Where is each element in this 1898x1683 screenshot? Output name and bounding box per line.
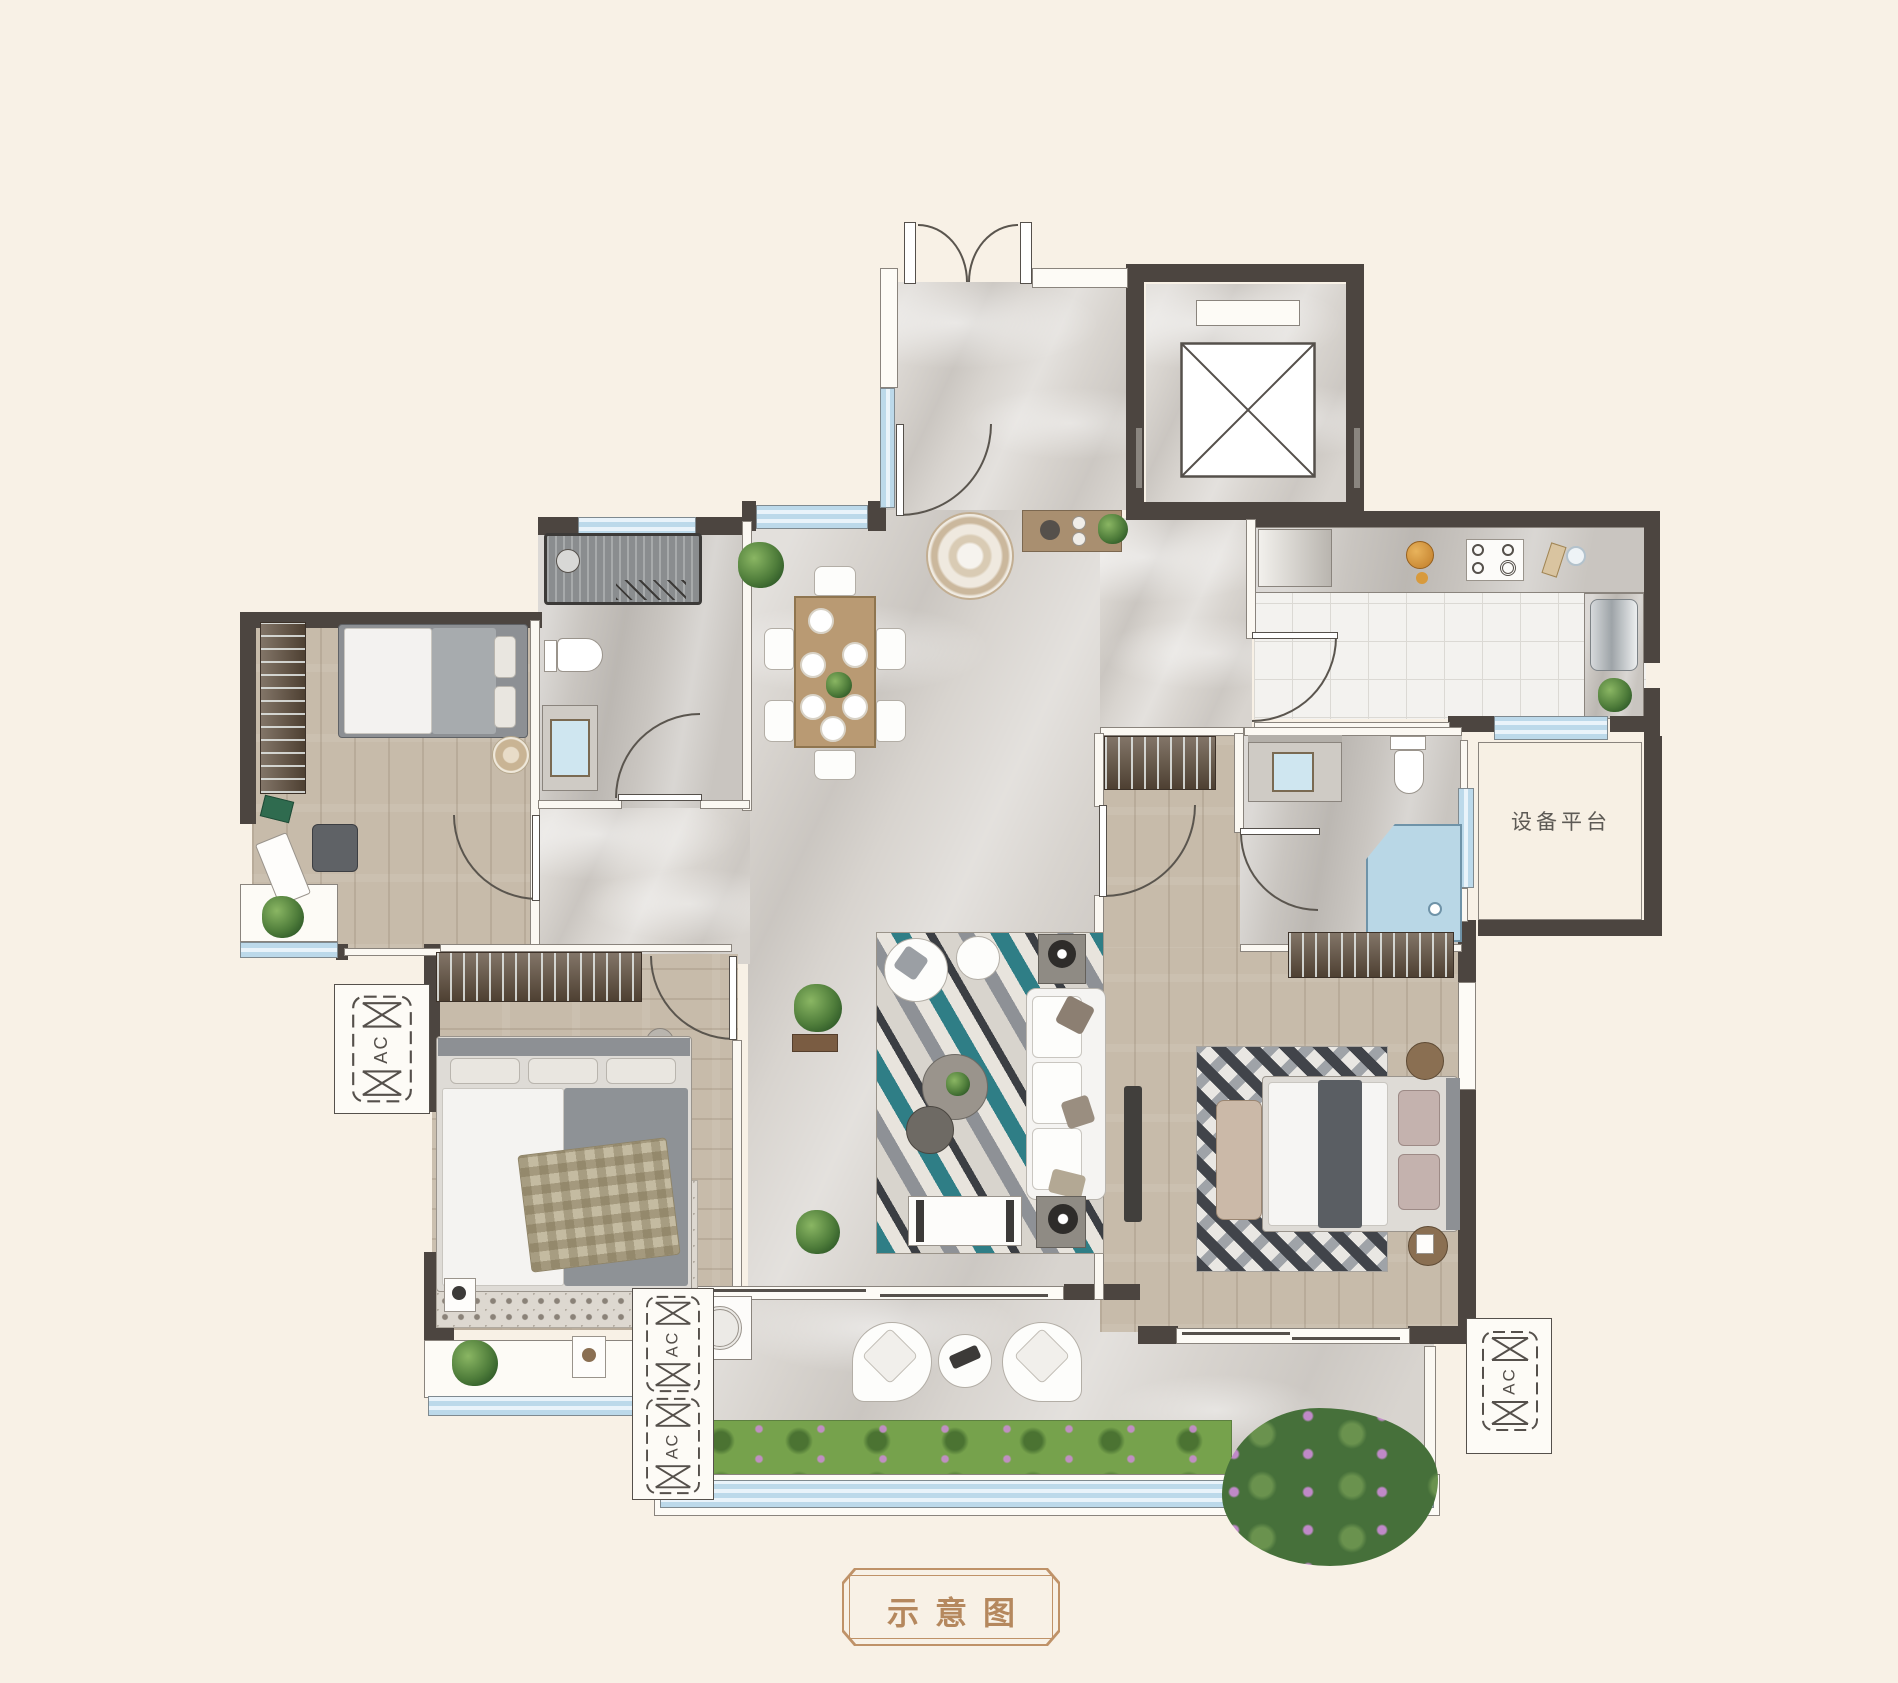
foyer-door-leaf	[896, 424, 904, 516]
round-rug	[926, 512, 1014, 600]
entry-door-leaf	[904, 222, 916, 284]
planter-box	[792, 1034, 838, 1052]
fruit-bowl	[1406, 541, 1434, 569]
plate	[842, 642, 868, 668]
partition	[700, 800, 750, 809]
console-decor	[1040, 520, 1060, 540]
bathroom-door-leaf	[618, 794, 702, 801]
sliding-window-line	[1292, 1337, 1400, 1340]
bed-pillow	[494, 686, 516, 728]
plant	[1098, 514, 1128, 544]
partition	[440, 944, 732, 952]
plant	[1598, 678, 1632, 712]
plate	[808, 608, 834, 634]
bed-pillow	[450, 1058, 520, 1084]
caption-text: 示意图	[842, 1588, 1060, 1634]
sliding-window-sill	[1176, 1328, 1410, 1344]
dish	[1566, 546, 1586, 566]
wall-segment	[1250, 511, 1660, 527]
bed-pillow	[528, 1058, 598, 1084]
elevator-wall-top	[1126, 264, 1364, 282]
window-glass	[428, 1396, 648, 1416]
burner	[1472, 544, 1484, 556]
sliding-door-line	[698, 1289, 866, 1292]
bed-blanket	[432, 628, 496, 734]
plate	[820, 716, 846, 742]
vanity-sink	[550, 719, 590, 777]
ac-unit-icon: AC	[350, 992, 414, 1106]
suite-door-leaf	[1099, 805, 1107, 897]
window-sill	[1032, 268, 1128, 288]
window-glass	[880, 388, 895, 508]
desk-chair	[312, 824, 358, 872]
plant	[262, 896, 304, 938]
plant	[738, 542, 784, 588]
plate	[800, 694, 826, 720]
floor-plan: 设备平台	[0, 0, 1898, 1683]
wall-segment	[1458, 1090, 1476, 1342]
entry-door-arc	[918, 224, 968, 282]
corridor-floor-left	[536, 806, 750, 964]
equipment-platform-label: 设备平台	[1486, 806, 1636, 832]
dining-chair	[764, 628, 794, 670]
partition	[1246, 519, 1256, 639]
wardrobe	[1288, 932, 1454, 978]
wall-segment	[1610, 716, 1660, 732]
water-heater	[1590, 599, 1638, 671]
bed-throw	[1318, 1080, 1362, 1228]
ac-label: AC	[663, 1331, 681, 1358]
toilet-bowl	[1394, 750, 1424, 794]
partition	[1094, 733, 1104, 807]
partition	[1460, 740, 1468, 790]
plate	[800, 652, 826, 678]
table-plant	[946, 1072, 970, 1096]
towel-rack	[616, 580, 686, 600]
wall-segment	[240, 612, 256, 824]
dining-chair	[814, 750, 856, 780]
dining-chair	[876, 628, 906, 670]
plant	[794, 984, 842, 1032]
corner-shower	[1366, 824, 1462, 942]
bed-headboard	[438, 1038, 690, 1056]
window-glass	[240, 942, 338, 958]
vanity-sink	[1272, 752, 1314, 792]
ac-unit-icon: AC	[1480, 1326, 1540, 1436]
wardrobe	[260, 622, 306, 794]
fruit	[1416, 572, 1428, 584]
vinyl-record	[1048, 1204, 1078, 1234]
partition	[1100, 727, 1244, 736]
flower-bush	[1222, 1408, 1438, 1566]
tv-console	[1124, 1086, 1142, 1222]
wall-segment	[1138, 1326, 1178, 1344]
bed-pillow	[494, 636, 516, 678]
caption-plaque: 示意图	[842, 1568, 1060, 1646]
burner	[1472, 562, 1484, 574]
ac-label: AC	[1499, 1367, 1518, 1395]
toilet-bowl	[557, 638, 603, 672]
shower-drain	[1428, 902, 1442, 916]
entry-door-arc	[968, 224, 1018, 282]
corridor-floor-kitchen	[1100, 518, 1252, 736]
elevator-door-mark	[1354, 428, 1360, 488]
console-decor	[1072, 532, 1086, 546]
elevator-niche	[1196, 300, 1300, 326]
ensuite-door-leaf	[1240, 828, 1320, 835]
tv-bench-leg	[916, 1200, 924, 1242]
nightstand-book	[1416, 1234, 1434, 1254]
ac-unit-icon: AC	[644, 1294, 702, 1394]
dining-chair	[814, 566, 856, 596]
bed-pillow	[1398, 1154, 1440, 1210]
toilet-tank	[1390, 736, 1426, 750]
ac-label: AC	[371, 1034, 391, 1063]
round-rug	[492, 736, 530, 774]
window-sill	[880, 268, 898, 388]
tv-bench-leg	[1006, 1200, 1014, 1242]
wardrobe	[436, 952, 642, 1002]
bed-bench	[1216, 1100, 1262, 1220]
bed-headboard	[1446, 1078, 1460, 1230]
bedroom1-door-leaf	[532, 815, 540, 901]
dining-chair	[876, 700, 906, 742]
kitchen-door-leaf	[1252, 632, 1338, 639]
bed-pillow	[1398, 1090, 1440, 1146]
vanity-mirror	[1248, 735, 1342, 742]
burner	[1502, 544, 1514, 556]
sliding-window-line	[1182, 1332, 1290, 1335]
elevator-shaft-icon	[1180, 342, 1316, 478]
entry-door-leaf	[1020, 222, 1032, 284]
toilet-tank	[544, 640, 557, 672]
side-table	[956, 936, 1000, 980]
wall-segment	[696, 517, 748, 535]
plaid-throw	[517, 1137, 680, 1272]
table-centerpiece	[826, 672, 852, 698]
nightstand	[1406, 1042, 1444, 1080]
elevator-door-mark	[1136, 428, 1142, 488]
window-glass	[756, 505, 868, 529]
dining-chair	[764, 700, 794, 742]
wardrobe	[1104, 736, 1216, 790]
side-table-decor	[452, 1286, 466, 1300]
bed-duvet	[344, 628, 432, 734]
coffee-table-small	[906, 1106, 954, 1154]
bay-table-decor	[582, 1348, 596, 1362]
vinyl-record	[1048, 940, 1076, 968]
fridge	[1258, 529, 1332, 587]
window-sill	[1458, 982, 1476, 1090]
wall-segment	[424, 1326, 454, 1340]
plate	[842, 694, 868, 720]
wall-segment	[1644, 736, 1662, 936]
ac-unit-icon: AC	[644, 1396, 702, 1496]
partition	[1234, 733, 1244, 833]
sliding-door-line	[880, 1294, 1048, 1297]
wall-segment	[1478, 920, 1662, 936]
console-decor	[1072, 516, 1086, 530]
bed-pillow	[606, 1058, 676, 1084]
balcony-grass	[686, 1420, 1232, 1478]
burner	[1500, 560, 1516, 576]
partition	[538, 800, 622, 809]
tv-bench	[908, 1196, 1022, 1246]
bathtub-drain	[556, 549, 580, 573]
bedroom2-door-leaf	[729, 956, 737, 1040]
window-glass	[1494, 716, 1608, 740]
wall-segment	[1644, 511, 1660, 663]
ac-label: AC	[663, 1433, 681, 1460]
plant	[452, 1340, 498, 1386]
plant	[796, 1210, 840, 1254]
